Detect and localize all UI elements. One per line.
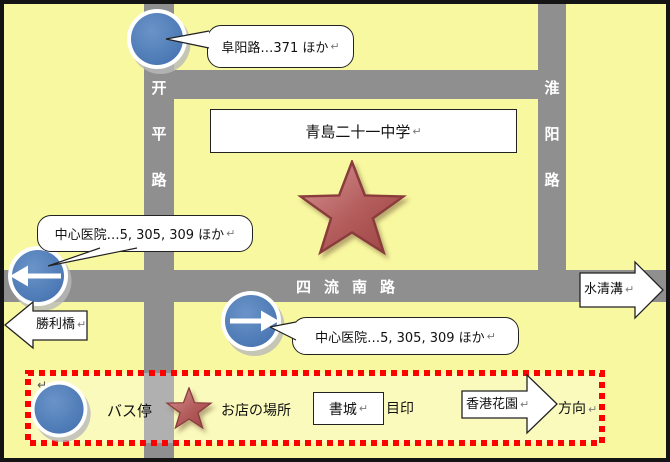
legend-bus-stop-label: バス停 <box>107 402 152 420</box>
return-mark: ↵ <box>412 125 421 138</box>
shop-star-icon <box>296 160 408 264</box>
callout-tail <box>40 246 140 268</box>
callout-text: 中心医院…5, 305, 309 ほか <box>315 327 485 346</box>
callout-hospital-middle: 中心医院…5, 305, 309 ほか↵ <box>292 317 519 355</box>
return-mark: ↵ <box>77 318 86 331</box>
return-mark: ↵ <box>226 227 235 240</box>
shuiqinggou-label: 水清溝↵ <box>584 281 634 298</box>
edge-arrow-text: 水清溝 <box>584 282 623 297</box>
edge-arrow-text: 勝利橋 <box>36 317 75 332</box>
shengliqiao-label: 勝利橋↵ <box>36 316 86 333</box>
return-mark: ↵ <box>487 330 496 343</box>
hongkong-garden-label: 香港花園↵ <box>466 396 529 413</box>
direction-text: 方向 <box>558 401 586 417</box>
callout-fuyang-bus-routes: 阜阳路…371 ほか↵ <box>207 25 354 68</box>
return-mark: ↵ <box>520 398 529 411</box>
callout-text: 中心医院…5, 305, 309 ほか <box>55 224 225 243</box>
return-mark: ↵ <box>625 283 634 296</box>
return-mark: ↵ <box>359 402 368 415</box>
callout-text: 阜阳路…371 ほか <box>221 37 328 56</box>
legend-landmark-box: 書城↵ <box>313 392 384 425</box>
legend-landmark-label: 目印 <box>386 400 414 418</box>
map-canvas: 开 平 路 淮 阳 路 四流南路 青島二十一中学↵ <box>0 0 670 462</box>
return-mark: ↵ <box>588 403 597 416</box>
return-mark: ↵ <box>330 40 339 53</box>
landmark-box-text: 書城 <box>329 399 357 419</box>
school-label: 青島二十一中学 <box>305 121 410 142</box>
callout-tail <box>164 28 210 50</box>
legend-direction-label: 方向↵ <box>558 400 597 419</box>
direction-box-text: 香港花園 <box>466 397 518 412</box>
return-mark: ↵ <box>37 378 47 392</box>
legend-shop-label: お店の場所 <box>221 402 291 420</box>
callout-tail <box>266 318 300 344</box>
school-box: 青島二十一中学↵ <box>210 109 517 153</box>
legend-shop-star-icon <box>165 387 213 433</box>
